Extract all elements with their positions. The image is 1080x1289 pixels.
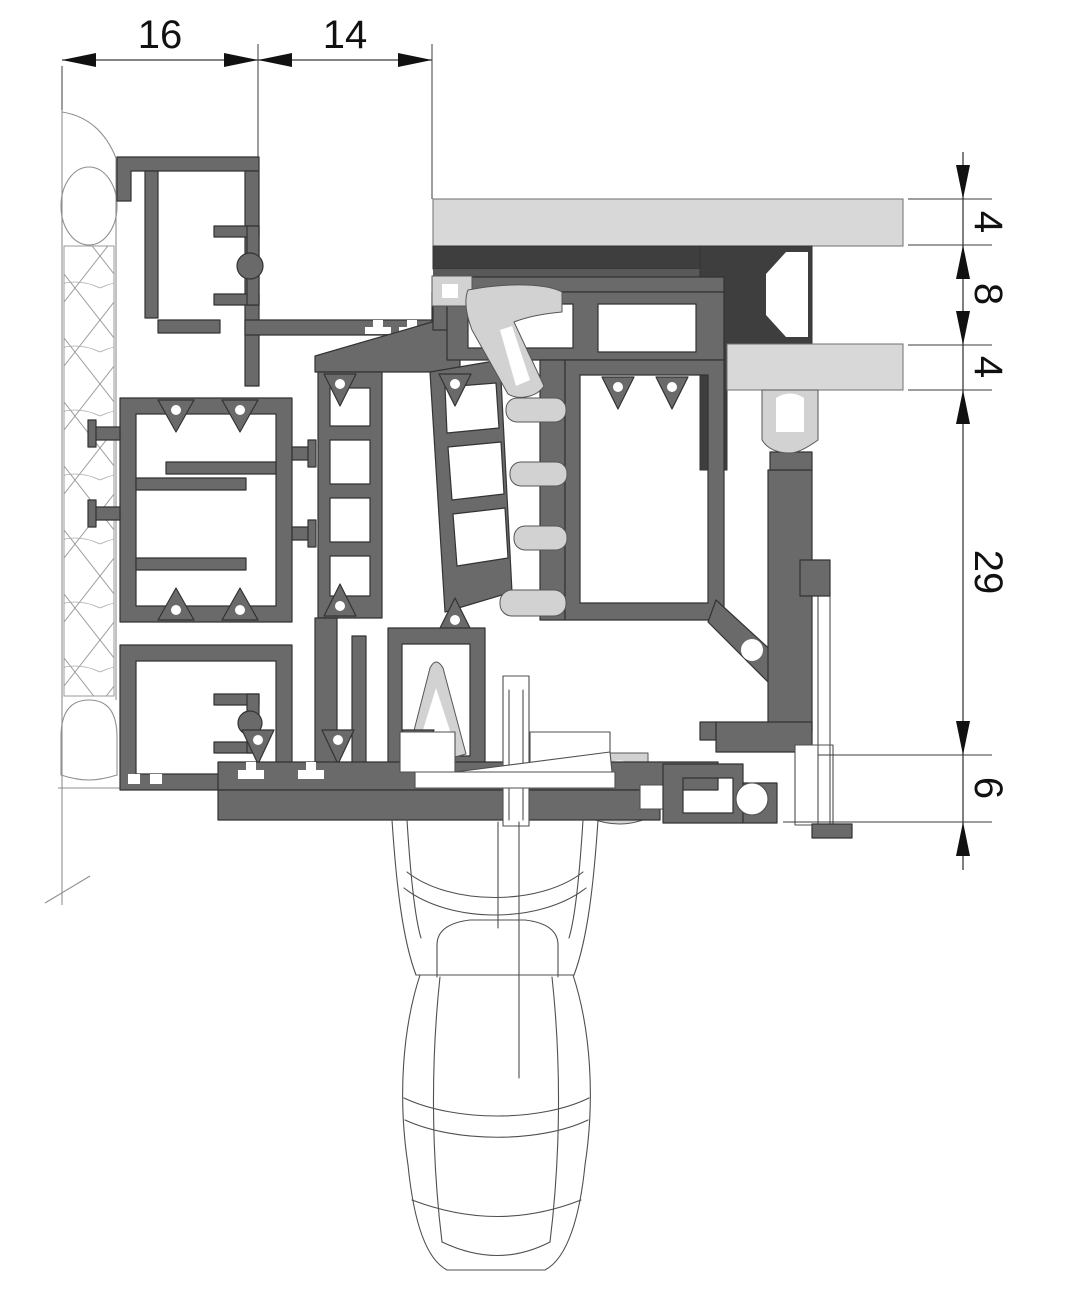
- dim-label-14: 14: [323, 13, 368, 57]
- handle-flare: [392, 820, 416, 975]
- lock-spindle: [503, 676, 529, 826]
- cad-drawing-canvas: 16 14 4 8 4 29 6: [0, 0, 1080, 1289]
- outer-frame-profile: [88, 157, 316, 790]
- profile-section-drawing: 16 14 4 8 4 29 6: [0, 0, 1080, 1289]
- glass-pane-upper: [433, 199, 903, 246]
- roller-wheel: [736, 783, 768, 815]
- finger-gasket-1: [506, 398, 566, 422]
- door-handle: [392, 820, 598, 1270]
- dim-label-8: 8: [966, 283, 1010, 305]
- backer-rod-bottom: [61, 700, 117, 780]
- dim-label-6: 6: [966, 777, 1010, 799]
- dim-label-4-upper: 4: [966, 211, 1010, 233]
- dim-label-4-lower: 4: [966, 356, 1010, 378]
- grip-band: [404, 1098, 589, 1116]
- insulation-hatch: [64, 246, 114, 696]
- finger-gasket-3: [514, 526, 567, 550]
- handle-grip: [403, 975, 591, 1270]
- glass-pane-lower: [727, 344, 903, 390]
- keeper-plate: [795, 745, 833, 825]
- finger-gasket-4: [500, 590, 566, 616]
- dim-label-16: 16: [138, 13, 183, 57]
- finger-gasket-2: [510, 462, 567, 486]
- spindle-axis: [498, 822, 519, 1078]
- handle-saddle: [407, 872, 583, 898]
- roller-unit: [663, 764, 777, 823]
- dim-label-29: 29: [966, 550, 1010, 595]
- backer-rod-top: [61, 167, 117, 245]
